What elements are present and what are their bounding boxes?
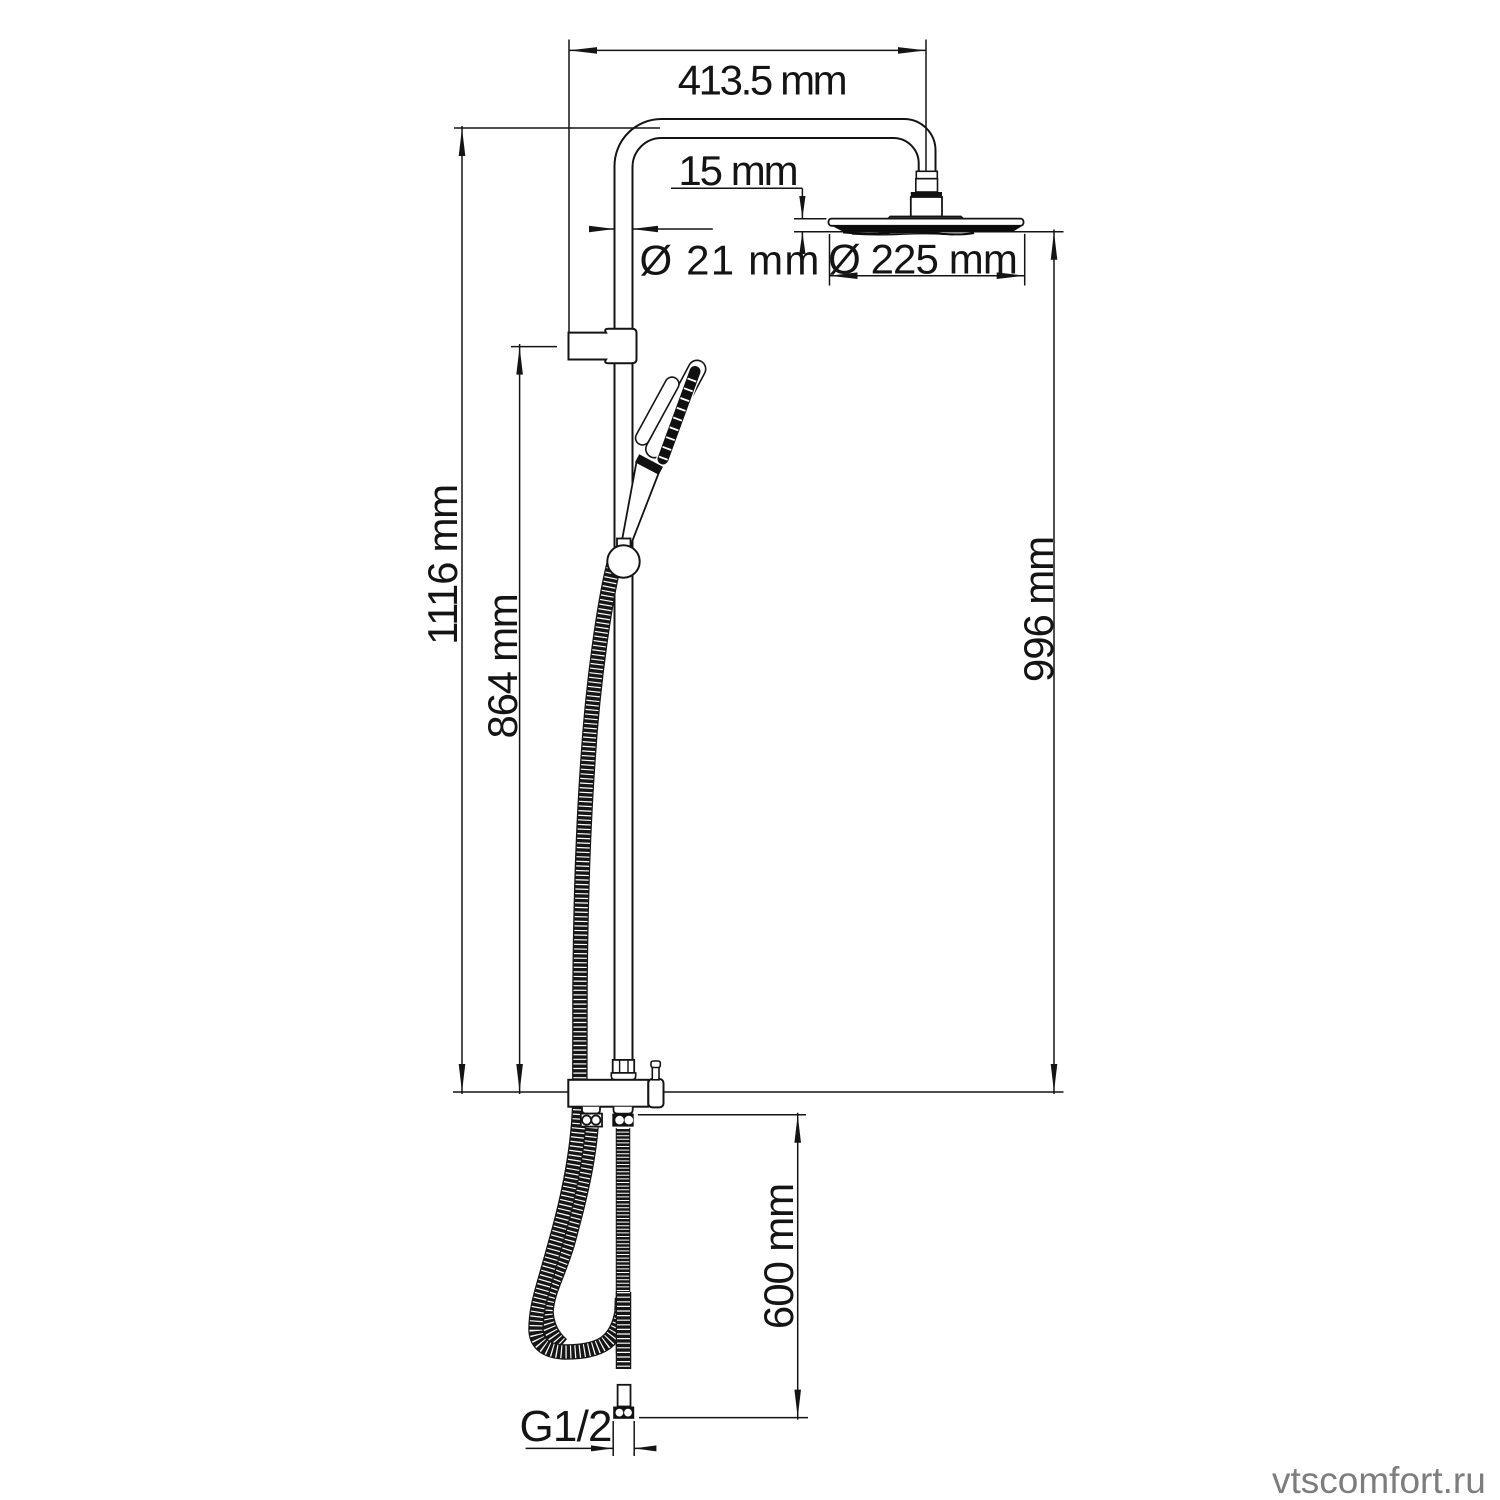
svg-text:864 mm: 864 mm (479, 595, 526, 739)
svg-text:1116 mm: 1116 mm (419, 485, 466, 645)
svg-text:15 mm: 15 mm (678, 147, 796, 194)
svg-text:996 mm: 996 mm (1015, 537, 1062, 682)
svg-text:vtscomfort.ru: vtscomfort.ru (1272, 1460, 1486, 1500)
svg-text:413.5 mm: 413.5 mm (678, 57, 846, 104)
svg-text:Ø 21 mm: Ø 21 mm (639, 236, 820, 283)
svg-text:G1/2: G1/2 (520, 1402, 612, 1451)
svg-text:600 mm: 600 mm (755, 1184, 802, 1329)
svg-text:Ø 225 mm: Ø 225 mm (828, 235, 1017, 282)
